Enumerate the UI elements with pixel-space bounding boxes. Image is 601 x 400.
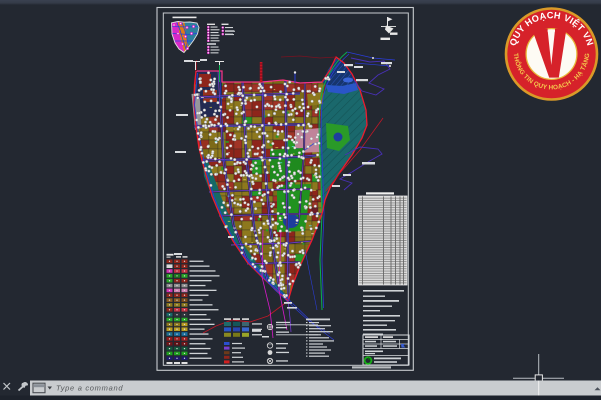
svg-text:Type a command: Type a command [56, 384, 123, 393]
